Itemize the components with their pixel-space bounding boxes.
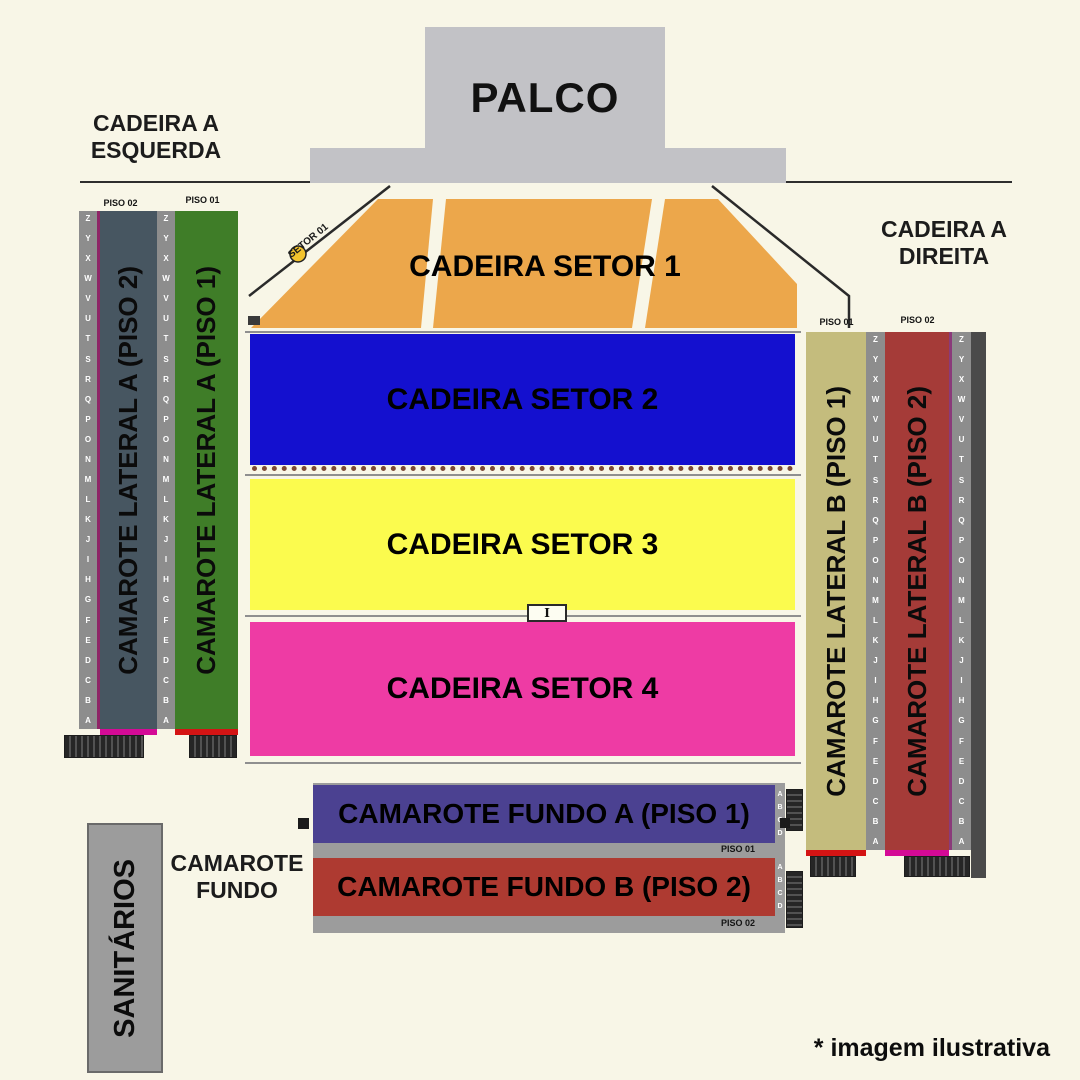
row-letter: Y (85, 235, 90, 243)
row-letter: D (85, 657, 91, 665)
row-letter: R (873, 497, 879, 505)
camarote-lateral-b-piso2-label: CAMAROTE LATERAL B (PISO 2) (902, 386, 933, 797)
row-letter-strip-left-piso2: ZYXWVUTSRQPONMLKJIHGFEDCBA (79, 211, 97, 729)
row-letter: R (163, 376, 169, 384)
left-piso1-header: PISO 01 (170, 196, 235, 205)
row-letter: P (85, 416, 90, 424)
row-letter: T (959, 456, 964, 464)
row-letter: U (959, 436, 965, 444)
row-letter: I (874, 677, 876, 685)
row-letter-strip-left-piso1: ZYXWVUTSRQPONMLKJIHGFEDCBA (157, 211, 175, 729)
row-letter: C (959, 798, 965, 806)
row-letter: O (872, 557, 878, 565)
row-letter: A (85, 717, 91, 725)
row-letter: Z (959, 336, 964, 344)
row-letter: Q (85, 396, 91, 404)
sound-desk-icon: I (527, 604, 567, 622)
stairs-right-1 (810, 856, 856, 877)
row-letter: J (959, 657, 963, 665)
rear-area-label-line2: FUNDO (163, 877, 311, 904)
row-letter: D (959, 778, 965, 786)
row-letter: C (873, 798, 879, 806)
camarote-fundo-b-label: CAMAROTE FUNDO B (PISO 2) (337, 871, 751, 903)
row-letter: V (163, 295, 168, 303)
row-letter: L (86, 496, 91, 504)
row-letter: M (85, 476, 92, 484)
row-letter: K (959, 637, 965, 645)
row-letter: H (959, 697, 965, 705)
row-letter-strip-right-piso2: ZYXWVUTSRQPONMLKJIHGFEDCBA (952, 332, 971, 850)
sector-4-label: CADEIRA SETOR 4 (387, 672, 659, 706)
row-letter: U (873, 436, 879, 444)
camarote-lateral-b-piso1-label: CAMAROTE LATERAL B (PISO 1) (821, 386, 852, 797)
row-letter: W (84, 275, 92, 283)
row-letter: B (873, 818, 879, 826)
row-letter: M (163, 476, 170, 484)
row-letter: A (777, 864, 782, 871)
row-letter: J (164, 536, 168, 544)
row-letter: I (87, 556, 89, 564)
row-letter: B (959, 818, 965, 826)
row-letter: K (873, 637, 879, 645)
row-letter: P (163, 416, 168, 424)
row-letter: A (777, 791, 782, 798)
row-letter: J (86, 536, 90, 544)
row-letter: V (959, 416, 964, 424)
camarote-fundo-b-floor: PISO 02 (600, 919, 755, 928)
row-letter: N (873, 577, 879, 585)
row-letter: F (959, 738, 964, 746)
row-letter: D (873, 778, 879, 786)
row-letter: D (777, 830, 782, 837)
row-letter: O (958, 557, 964, 565)
camarote-lateral-a-piso1-label: CAMAROTE LATERAL A (PISO 1) (191, 266, 222, 675)
sector-3-label: CADEIRA SETOR 3 (387, 528, 659, 562)
stairs-fundo-b (786, 871, 803, 928)
right-piso1-base-strip (806, 850, 866, 856)
left-area-label-line2: ESQUERDA (90, 137, 222, 164)
camarote-fundo-a-label: CAMAROTE FUNDO A (PISO 1) (338, 798, 750, 830)
row-letter: B (163, 697, 169, 705)
sector-4-region: CADEIRA SETOR 4 (250, 622, 795, 756)
sector-2-label: CADEIRA SETOR 2 (387, 383, 659, 417)
right-area-label: CADEIRA A DIREITA (873, 216, 1015, 270)
row-letter: F (873, 738, 878, 746)
row-letter: Q (958, 517, 964, 525)
sound-desk-glyph: I (544, 606, 550, 620)
row-letter: Y (959, 356, 964, 364)
stairs-right-2 (904, 856, 970, 877)
row-letter: H (85, 576, 91, 584)
camarote-lateral-a-piso2-label: CAMAROTE LATERAL A (PISO 2) (113, 266, 144, 675)
row-letter-strip-fundo-b: ABCD (775, 862, 785, 912)
row-letter: N (959, 577, 965, 585)
camarote-lateral-a-piso1: CAMAROTE LATERAL A (PISO 1) (175, 211, 238, 729)
row-letter: O (163, 436, 169, 444)
sanitarios-label: SANITÁRIOS (109, 859, 142, 1038)
sector-2-region: CADEIRA SETOR 2 (250, 334, 795, 465)
row-letter: K (85, 516, 91, 524)
row-letter: P (873, 537, 878, 545)
camarote-fundo-a: CAMAROTE FUNDO A (PISO 1) (313, 785, 775, 843)
row-letter: I (960, 677, 962, 685)
sector-2-seat-row-edge (252, 466, 793, 471)
row-letter: L (164, 496, 169, 504)
row-letter: H (873, 697, 879, 705)
row-letter: X (163, 255, 168, 263)
row-letter: P (959, 537, 964, 545)
camarote-lateral-b-piso1: CAMAROTE LATERAL B (PISO 1) (806, 332, 866, 850)
row-letter: R (85, 376, 91, 384)
row-letter: B (85, 697, 91, 705)
row-letter: D (777, 903, 782, 910)
row-letter: H (163, 576, 169, 584)
row-letter: X (959, 376, 964, 384)
divider-line-3 (245, 615, 801, 617)
row-letter: G (872, 717, 878, 725)
sector-1-label: CADEIRA SETOR 1 (340, 250, 750, 284)
row-letter: Z (86, 215, 91, 223)
camarote-lateral-b-piso2: CAMAROTE LATERAL B (PISO 2) (885, 332, 949, 850)
row-letter: F (164, 617, 169, 625)
row-letter: S (959, 477, 964, 485)
camarote-fundo-a-floor: PISO 01 (600, 845, 755, 854)
row-letter: T (873, 456, 878, 464)
row-letter: M (958, 597, 965, 605)
left-piso1-base-strip (175, 729, 238, 735)
row-letter: G (958, 717, 964, 725)
stairs-left-2 (189, 735, 237, 758)
row-letter: I (165, 556, 167, 564)
sanitarios-box: SANITÁRIOS (87, 823, 163, 1073)
footnote: * imagem ilustrativa (765, 1034, 1050, 1063)
row-letter: B (777, 804, 782, 811)
row-letter: D (163, 657, 169, 665)
row-letter: S (85, 356, 90, 364)
right-area-label-line2: DIREITA (873, 243, 1015, 270)
row-letter: B (777, 877, 782, 884)
row-letter: V (873, 416, 878, 424)
row-letter: U (163, 315, 169, 323)
right-piso2-base-strip (885, 850, 949, 856)
camarote-fundo-b: CAMAROTE FUNDO B (PISO 2) (313, 858, 775, 916)
row-letter: J (873, 657, 877, 665)
row-letter: M (872, 597, 879, 605)
left-area-label: CADEIRA A ESQUERDA (90, 110, 222, 164)
row-letter: U (85, 315, 91, 323)
divider-line-2 (245, 474, 801, 476)
row-letter: K (163, 516, 169, 524)
row-letter: Y (163, 235, 168, 243)
row-letter: E (873, 758, 878, 766)
right-wall (971, 332, 986, 878)
row-letter: S (163, 356, 168, 364)
row-letter: A (163, 717, 169, 725)
row-letter: G (163, 596, 169, 604)
row-letter: V (85, 295, 90, 303)
rear-area-label: CAMAROTE FUNDO (163, 850, 311, 904)
row-letter: E (163, 637, 168, 645)
row-letter: O (85, 436, 91, 444)
row-letter: C (85, 677, 91, 685)
left-piso2-base-strip (100, 729, 157, 735)
camarote-lateral-a-piso2: CAMAROTE LATERAL A (PISO 2) (100, 211, 157, 729)
divider-line-4 (245, 762, 801, 764)
row-letter: L (959, 617, 964, 625)
right-piso1-header: PISO 01 (804, 318, 869, 327)
divider-line-1 (245, 331, 801, 333)
row-letter: X (85, 255, 90, 263)
row-letter: C (777, 890, 782, 897)
row-letter: Y (873, 356, 878, 364)
right-area-label-line1: CADEIRA A (873, 216, 1015, 243)
row-letter: N (85, 456, 91, 464)
sector-3-region: CADEIRA SETOR 3 (250, 479, 795, 610)
row-letter-strip-right-piso1: ZYXWVUTSRQPONMLKJIHGFEDCBA (866, 332, 885, 850)
row-letter: X (873, 376, 878, 384)
row-letter: L (873, 617, 878, 625)
row-letter: R (959, 497, 965, 505)
row-letter: Z (873, 336, 878, 344)
row-letter: E (85, 637, 90, 645)
row-letter: E (959, 758, 964, 766)
rear-area-label-line1: CAMAROTE (163, 850, 311, 877)
row-letter: N (163, 456, 169, 464)
left-piso2-header: PISO 02 (88, 199, 153, 208)
row-letter: W (162, 275, 170, 283)
row-letter: T (164, 335, 169, 343)
row-letter: A (959, 838, 965, 846)
row-letter: Q (163, 396, 169, 404)
row-letter: W (872, 396, 880, 404)
row-letter: S (873, 477, 878, 485)
row-letter: F (86, 617, 91, 625)
row-letter-strip-fundo-a: ABCD (775, 789, 785, 839)
sector1-entrance-icon (248, 316, 260, 325)
left-area-label-line1: CADEIRA A (90, 110, 222, 137)
stage-apron (310, 148, 786, 183)
row-letter: C (163, 677, 169, 685)
row-letter: G (85, 596, 91, 604)
stairs-left-1 (64, 735, 144, 758)
row-letter: Z (164, 215, 169, 223)
right-piso2-header: PISO 02 (885, 316, 950, 325)
row-letter: Q (872, 517, 878, 525)
row-letter: T (86, 335, 91, 343)
camarote-fundo-marker (298, 818, 309, 829)
row-letter: W (958, 396, 966, 404)
venue-seating-map: SETOR 01 PALCO CADEIRA A ESQUERDA CADEIR… (0, 0, 1080, 1080)
row-letter: A (873, 838, 879, 846)
stairs-fundo-a-step (780, 818, 790, 828)
stage: PALCO (425, 27, 665, 148)
stage-label: PALCO (471, 74, 620, 122)
